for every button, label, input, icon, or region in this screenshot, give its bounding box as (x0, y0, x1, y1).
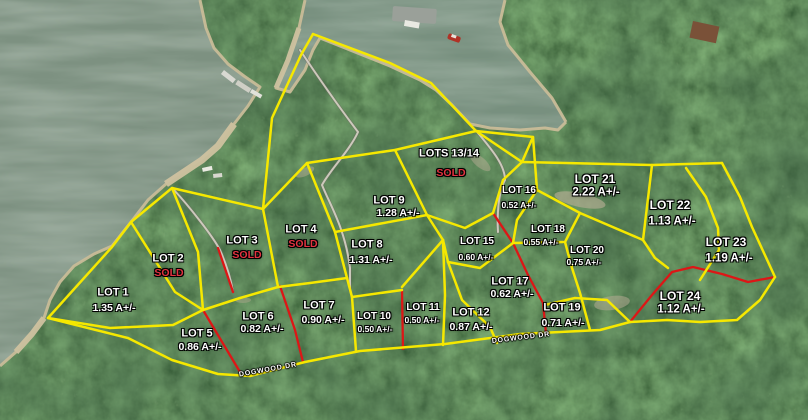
lot-16-name: LOT 16 (502, 186, 536, 196)
lot-13-14-sold-status: SOLD (436, 168, 465, 179)
lot-4-sold-status: SOLD (288, 239, 317, 250)
lot-11-acreage: 0.50 A+/- (405, 316, 440, 325)
lot-19-name: LOT 19 (543, 303, 580, 314)
lot-6-name: LOT 6 (242, 312, 273, 323)
lot-10-acreage: 0.50 A+/- (358, 325, 393, 334)
aerial-lot-map: LOT 11.35 A+/-LOT 2SOLDLOT 3SOLDLOT 4SOL… (0, 0, 808, 420)
lot-21-acreage: 2.22 A+/- (572, 187, 619, 199)
lot-16-acreage: 0.52 A+/- (502, 201, 537, 210)
road-label-dogwood-dr-1: DOGWOOD DR (239, 361, 298, 378)
lot-23-name: LOT 23 (706, 236, 747, 248)
lot-9-acreage: 1.28 A+/- (376, 208, 419, 219)
lot-labels-layer: LOT 11.35 A+/-LOT 2SOLDLOT 3SOLDLOT 4SOL… (0, 0, 808, 420)
lot-21-name: LOT 21 (575, 173, 616, 185)
lot-24-name: LOT 24 (660, 290, 701, 302)
lot-1-acreage: 1.35 A+/- (92, 303, 135, 314)
lot-15-acreage: 0.60 A+/- (459, 253, 494, 262)
lot-17-name: LOT 17 (491, 277, 528, 288)
lot-15-name: LOT 15 (460, 237, 494, 247)
lot-8-acreage: 1.31 A+/- (349, 255, 392, 266)
lot-9-name: LOT 9 (373, 196, 404, 207)
lot-2-sold-status: SOLD (154, 268, 183, 279)
lot-12-acreage: 0.87 A+/- (449, 322, 492, 333)
lot-3-name: LOT 3 (226, 236, 257, 247)
lot-18-name: LOT 18 (531, 225, 565, 235)
lot-23-acreage: 1.19 A+/- (705, 253, 752, 265)
lot-7-name: LOT 7 (303, 301, 334, 312)
lot-11-name: LOT 11 (406, 303, 439, 313)
lot-3-sold-status: SOLD (232, 250, 261, 261)
lot-22-acreage: 1.13 A+/- (648, 216, 695, 228)
lot-13-14-name: LOTS 13/14 (419, 149, 479, 160)
lot-19-acreage: 0.71 A+/- (541, 318, 584, 329)
lot-8-name: LOT 8 (351, 240, 382, 251)
road-label-dogwood-dr-2: DOGWOOD DR (492, 331, 551, 345)
lot-17-acreage: 0.62 A+/- (490, 289, 533, 300)
lot-2-name: LOT 2 (152, 254, 183, 265)
lot-20-name: LOT 20 (570, 246, 604, 256)
lot-20-acreage: 0.75 A+/- (567, 258, 602, 267)
lot-4-name: LOT 4 (285, 225, 316, 236)
lot-1-name: LOT 1 (97, 288, 128, 299)
lot-5-acreage: 0.86 A+/- (178, 342, 221, 353)
lot-10-name: LOT 10 (357, 312, 391, 322)
lot-18-acreage: 0.55 A+/- (524, 238, 559, 247)
lot-12-name: LOT 12 (452, 308, 489, 319)
lot-5-name: LOT 5 (181, 329, 212, 340)
lot-6-acreage: 0.82 A+/- (240, 324, 283, 335)
lot-7-acreage: 0.90 A+/- (301, 315, 344, 326)
lot-22-name: LOT 22 (650, 199, 691, 211)
lot-24-acreage: 1.12 A+/- (657, 304, 704, 316)
